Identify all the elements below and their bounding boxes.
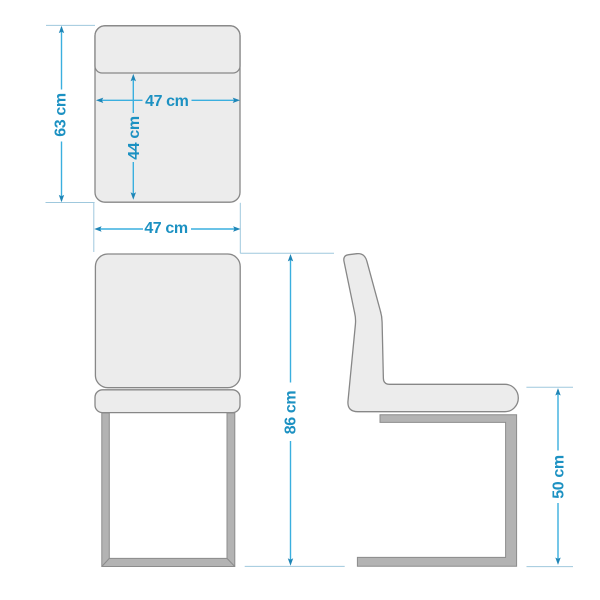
svg-text:63 cm: 63 cm	[52, 93, 69, 137]
svg-text:86 cm: 86 cm	[283, 391, 300, 435]
svg-text:50 cm: 50 cm	[551, 455, 568, 499]
svg-text:47 cm: 47 cm	[145, 93, 189, 110]
svg-text:47 cm: 47 cm	[144, 220, 188, 237]
svg-text:44 cm: 44 cm	[126, 116, 143, 160]
